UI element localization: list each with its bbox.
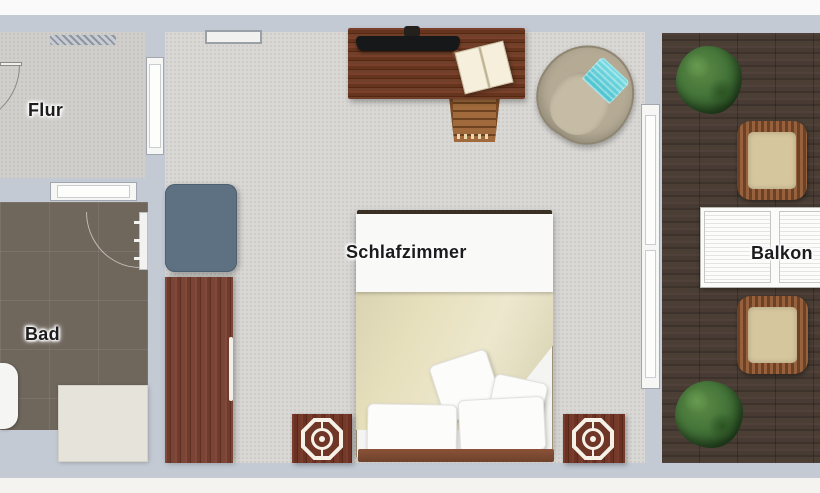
door-hinge-tick: [134, 221, 140, 224]
flur-entry-door-leaf: [0, 62, 22, 66]
shower-tray-icon: [58, 385, 148, 462]
bedroom-top-window: [205, 30, 262, 44]
bathroom-door-leaf: [139, 212, 148, 270]
wardrobe-icon: [165, 277, 233, 463]
lamp-finial: [319, 436, 325, 442]
radiator-icon: [50, 35, 116, 45]
pillow: [367, 403, 458, 455]
table-lamp-right-icon: [572, 418, 614, 460]
wicker-chair-icon: [737, 121, 807, 200]
floor-plan: Flur Bad Schlafzimmer Balkon: [0, 0, 820, 493]
chair-cushion: [748, 307, 797, 363]
potted-plant-icon: [675, 381, 743, 448]
chair-spindles: [457, 134, 492, 139]
potted-plant-icon: [676, 46, 742, 114]
balcony-door-window: [641, 104, 660, 389]
bed-headboard: [358, 449, 554, 462]
flur-bedroom-door: [146, 57, 164, 155]
outer-margin-bottom: [0, 478, 820, 493]
flur-bad-door: [50, 182, 137, 201]
wardrobe-handle: [229, 337, 233, 401]
window-pane-top: [645, 115, 656, 245]
window-pane-bottom: [645, 250, 656, 378]
table-lamp-left-icon: [301, 418, 343, 460]
monitor-icon: [356, 36, 460, 51]
room-label-flur: Flur: [28, 100, 63, 121]
room-label-schlafzimmer: Schlafzimmer: [346, 242, 467, 263]
door-pane: [149, 64, 161, 148]
desk-chair-icon: [449, 96, 500, 142]
room-label-balkon: Balkon: [751, 243, 813, 264]
chair-cushion: [748, 132, 796, 189]
room-label-bad: Bad: [25, 324, 60, 345]
wicker-chair-icon: [737, 296, 808, 374]
pillow: [458, 396, 547, 454]
room-flur-floor: [0, 32, 145, 178]
dresser-icon: [165, 184, 237, 272]
lamp-finial: [590, 436, 596, 442]
door-hinge-tick: [134, 239, 140, 242]
door-pane: [57, 185, 130, 198]
toilet-icon: [0, 363, 18, 429]
door-hinge-tick: [134, 257, 140, 260]
book-spine: [478, 47, 491, 88]
